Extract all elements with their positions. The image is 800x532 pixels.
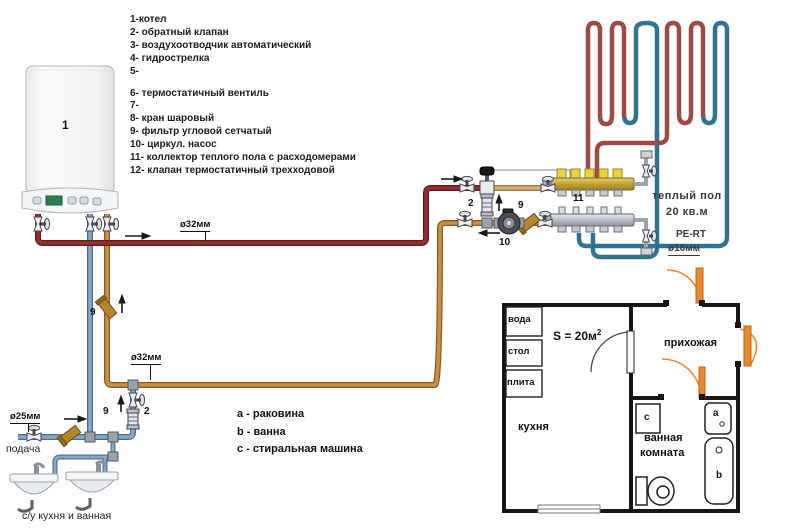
legend-item: 9- фильтр угловой сетчатый [130,126,356,139]
bath-mark: b [716,470,722,481]
three-way-thermostatic-valve [480,167,494,194]
check-valve-number: 2 [468,198,474,209]
boiler-display [46,196,62,205]
legend-item: 2- обратный клапан [130,27,356,40]
floor-heating-label-1: теплый пол [652,190,722,202]
fixtures-legend-item: c - стиральная машина [237,441,363,459]
fixtures-legend-item: b - ванна [237,424,363,442]
boiler [22,66,118,213]
entrance-door [663,268,705,306]
pipe-d32-bottom-label: ø32мм [131,352,161,365]
dim-tick [205,232,206,241]
fixtures-legend: a - раковина b - ванна c - стиральная ма… [237,406,363,459]
pipe-type-label: PE-RT [676,229,706,240]
legend-item: 3- воздухоотводчик автоматический [130,40,356,53]
legend-item: 6- термостатичный вентиль [130,88,356,101]
sink-mark: a [713,408,719,419]
pipe-d25-label: ø25мм [10,411,40,424]
washer-mark: c [644,412,650,423]
balcony-door [735,322,756,367]
legend-item: 10- циркул. насос [130,139,356,152]
legend-list: 1-котел 2- обратный клапан 3- воздухоотв… [130,14,356,178]
legend-item: 4- гидрострелка [130,53,356,66]
manifold-number: 11 [573,193,584,204]
supply-bar [550,178,634,190]
fixtures-legend-item: a - раковина [237,406,363,424]
pipe-d16-label: ø16мм [668,243,700,256]
kitchen-item-table: стол [508,346,529,357]
ball-valve-boiler-hot [34,217,50,231]
return-bar-stems [559,207,621,214]
ball-valve-cold-inlet [27,425,41,441]
check-valve-makeup [127,409,139,429]
pump-number: 10 [499,237,510,248]
supply-bar-nuts [558,190,622,196]
kitchen-item-stove: плита [507,377,535,388]
room-bathroom-2: комната [640,447,684,459]
area-label: S = 20м2 [553,328,601,343]
dim-tick [150,365,151,380]
filter-cold-number: 9 [103,406,109,417]
floor-heating-label-2: 20 кв.м [652,206,722,218]
return-bar-nuts [558,226,622,232]
boiler-number: 1 [62,118,69,132]
legend-item: 7- [130,100,356,113]
ball-valve-makeup [129,393,145,407]
ball-valve-boiler-return [103,217,119,231]
check-valve-supply [481,194,493,216]
check-makeup-number: 2 [144,406,150,417]
legend-item: 1-котел [130,14,356,27]
sink-bath [66,462,118,509]
ball-valve-pump-line-left [458,211,472,227]
filter-return-number: 9 [90,307,96,318]
sink-kitchen [10,464,58,511]
legend-item: 5- [130,66,356,79]
sink-trap [76,498,90,509]
supply-caption: подача [6,443,40,455]
legend-item: 11- коллектор теплого пола с расходомера… [130,152,356,165]
bathroom-door [658,359,705,400]
room-kitchen: кухня [518,421,549,433]
toilet [636,477,674,505]
manifold-right-assembly [634,151,657,255]
room-hallway: прихожая [664,337,717,349]
heating-scheme-canvas: 1-котел 2- обратный клапан 3- воздухоотв… [0,0,800,532]
room-bathroom-1: ванная [644,432,683,444]
area-sup: 2 [597,328,601,337]
legend-item: 8- кран шаровый [130,113,356,126]
sinks-caption: с/у кухня и ванная [22,510,111,522]
filter-number: 9 [518,200,524,211]
return-bar [550,214,634,226]
ball-valve-boiler-cold [86,217,102,231]
kitchen-item-water: вода [508,314,531,325]
legend-item: 12- клапан термостатичный трехходовой [130,165,356,178]
pipe-d32-top-label: ø32мм [180,219,210,232]
area-value: S = 20м [553,329,597,343]
dim-tick [28,424,29,432]
